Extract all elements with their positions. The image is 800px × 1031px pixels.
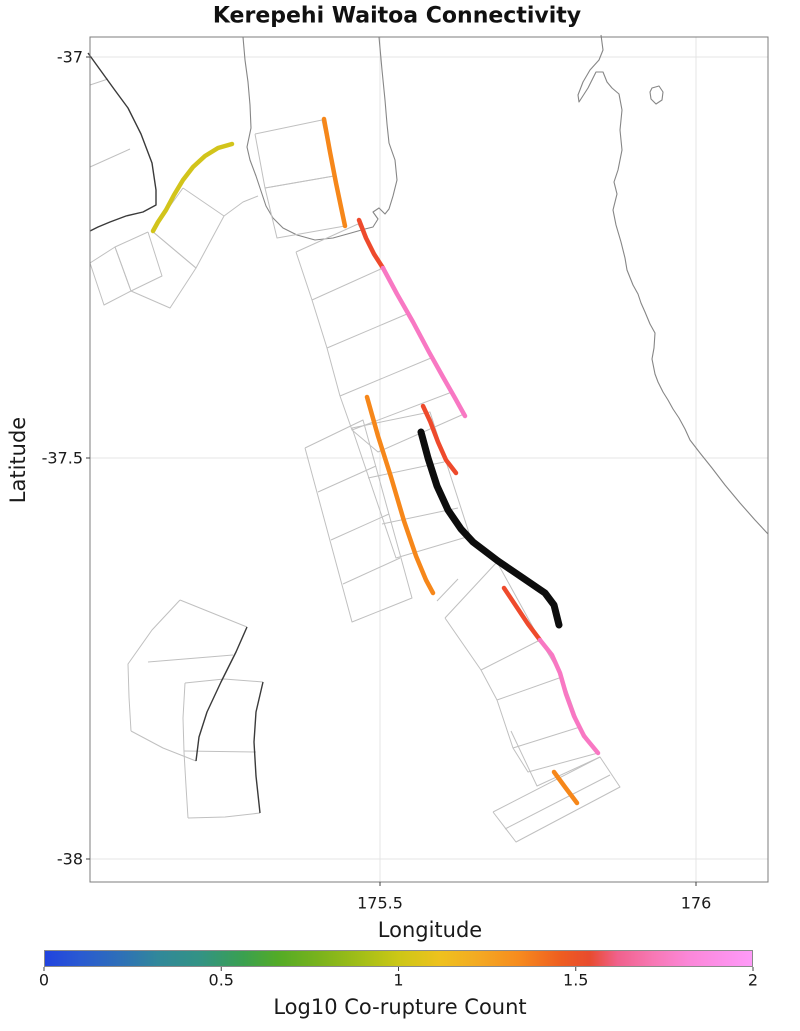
fault-section-mesh-12 bbox=[340, 358, 431, 396]
dark-fault-trace-1 bbox=[196, 627, 247, 761]
fault-trace-pink-south bbox=[540, 640, 598, 753]
fault-section-mesh-3 bbox=[90, 247, 131, 305]
dark-fault-trace-2 bbox=[254, 682, 263, 813]
fault-section-mesh-21 bbox=[445, 562, 598, 772]
fault-section-mesh-25 bbox=[437, 579, 458, 601]
fault-section-mesh-22 bbox=[481, 640, 540, 670]
fault-trace-red-south bbox=[504, 588, 540, 640]
fault-section-mesh-20 bbox=[343, 558, 400, 584]
fault-section-mesh-2 bbox=[115, 232, 162, 291]
fault-section-mesh-33 bbox=[185, 679, 263, 683]
fault-section-mesh-24 bbox=[513, 727, 580, 748]
coastline-0 bbox=[243, 37, 397, 240]
fault-section-mesh-6 bbox=[131, 231, 196, 308]
fault-trace-orange-central bbox=[367, 397, 433, 593]
fault-section-mesh-32 bbox=[131, 731, 196, 761]
fault-section-mesh-5 bbox=[224, 196, 258, 216]
figure: Kerepehi Waitoa Connectivity Latitude Lo… bbox=[0, 0, 800, 1031]
fault-section-mesh-23 bbox=[497, 677, 562, 700]
fault-section-mesh-34 bbox=[183, 683, 188, 818]
fault-section-mesh-18 bbox=[318, 466, 376, 492]
fault-trace-pink-north bbox=[383, 268, 465, 416]
fault-section-mesh-29 bbox=[180, 600, 247, 627]
fault-trace-yellow bbox=[153, 144, 232, 231]
fault-section-mesh-28 bbox=[505, 775, 610, 829]
chart-title: Kerepehi Waitoa Connectivity bbox=[213, 4, 581, 29]
island-0 bbox=[650, 86, 663, 104]
colorbar-gradient bbox=[45, 951, 752, 966]
fault-section-mesh-11 bbox=[327, 314, 407, 348]
fault-section-mesh-4 bbox=[152, 188, 224, 268]
fault-section-mesh-1 bbox=[90, 149, 130, 167]
coastline-1 bbox=[578, 35, 768, 534]
map-plot bbox=[0, 0, 800, 1031]
dark-fault-trace-0 bbox=[88, 53, 156, 231]
colorbar-label: Log10 Co-rupture Count bbox=[273, 995, 526, 1019]
fault-section-mesh-0 bbox=[90, 79, 108, 85]
fault-section-mesh-30 bbox=[128, 600, 180, 731]
colorbar bbox=[44, 950, 753, 967]
fault-section-mesh-10 bbox=[312, 268, 383, 300]
fault-section-mesh-27 bbox=[493, 757, 620, 842]
x-axis-label: Longitude bbox=[378, 918, 482, 942]
fault-section-mesh-36 bbox=[184, 751, 256, 752]
fault-section-mesh-31 bbox=[148, 655, 233, 662]
fault-section-mesh-8 bbox=[265, 176, 345, 238]
fault-section-mesh-35 bbox=[188, 813, 260, 818]
fault-trace-orange-north bbox=[324, 119, 345, 226]
y-axis-label: Latitude bbox=[6, 417, 30, 503]
